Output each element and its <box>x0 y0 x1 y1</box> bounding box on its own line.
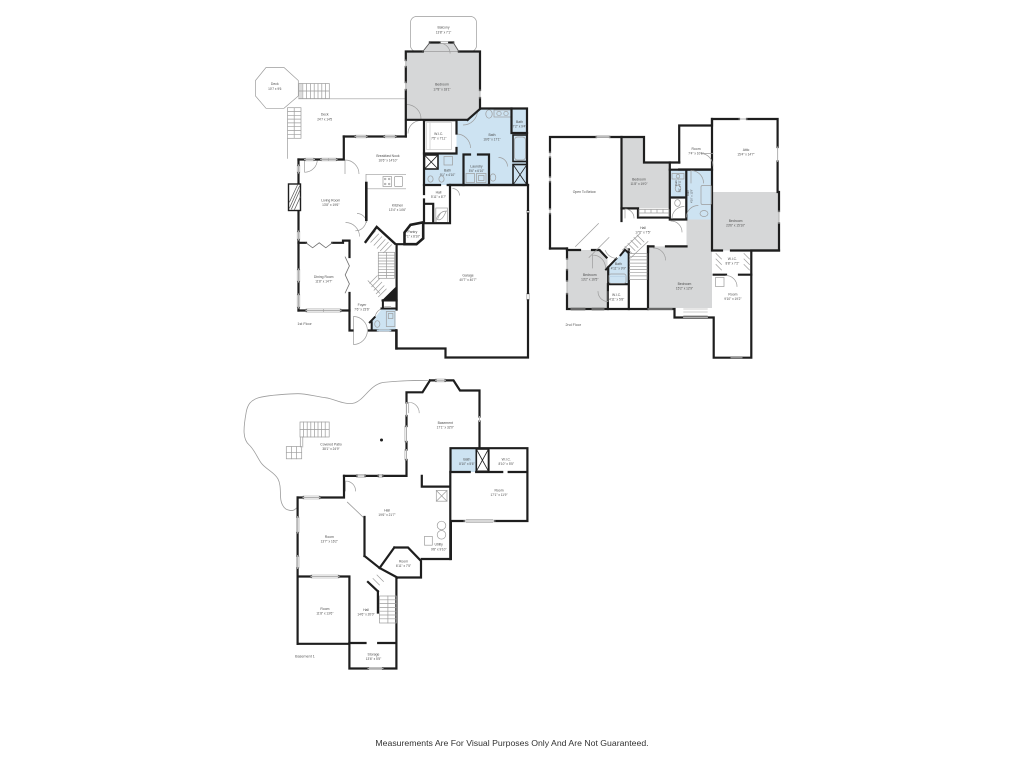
svg-text:Hall: Hall <box>436 190 442 194</box>
svg-text:Room: Room <box>691 147 700 151</box>
svg-text:Hall: Hall <box>384 509 390 513</box>
svg-text:23'6" x 15'10": 23'6" x 15'10" <box>726 224 745 228</box>
svg-text:9'8" x 9'10": 9'8" x 9'10" <box>431 547 446 551</box>
svg-text:W.I.C.: W.I.C. <box>612 293 621 297</box>
svg-text:Bath: Bath <box>516 120 523 124</box>
svg-text:Living Room: Living Room <box>321 198 340 202</box>
svg-text:11'8" x 14'7": 11'8" x 14'7" <box>315 279 332 283</box>
svg-text:8'10" x 5'5": 8'10" x 5'5" <box>499 462 514 466</box>
svg-text:13'8" x 7'1": 13'8" x 7'1" <box>436 30 451 34</box>
svg-text:10'7 x 9'6: 10'7 x 9'6 <box>268 87 282 91</box>
svg-text:Bedroom: Bedroom <box>583 273 597 277</box>
svg-text:7'6" x 23'6": 7'6" x 23'6" <box>354 308 369 312</box>
svg-text:14'6" x 20'0": 14'6" x 20'0" <box>357 612 374 616</box>
svg-text:W.I.C.: W.I.C. <box>502 458 511 462</box>
svg-text:16'6" x 14'10": 16'6" x 14'10" <box>379 158 398 162</box>
svg-text:24'7 x 14'5: 24'7 x 14'5 <box>317 117 332 121</box>
svg-text:1st Floor: 1st Floor <box>297 322 312 326</box>
svg-text:Balcony: Balcony <box>437 26 449 30</box>
svg-text:Garage: Garage <box>462 273 473 277</box>
svg-text:13'8" x 19'6": 13'8" x 19'6" <box>322 203 339 207</box>
svg-text:7'4" x 10'1": 7'4" x 10'1" <box>688 152 703 156</box>
svg-text:17'0" x 7'5": 17'0" x 7'5" <box>635 231 650 235</box>
svg-text:Attic: Attic <box>743 148 750 152</box>
svg-text:Dining Room: Dining Room <box>314 275 334 279</box>
svg-text:13'2" x 16'5": 13'2" x 16'5" <box>581 278 598 282</box>
svg-text:2nd Floor: 2nd Floor <box>566 323 582 327</box>
svg-text:5'11" x 8'7": 5'11" x 8'7" <box>431 195 446 199</box>
svg-text:15'2" x 12'9": 15'2" x 12'9" <box>676 287 693 291</box>
svg-text:Laundry: Laundry <box>470 164 483 168</box>
svg-text:5'6" x 6'10": 5'6" x 6'10" <box>469 169 484 173</box>
svg-text:6'11" x 7'5": 6'11" x 7'5" <box>396 564 411 568</box>
svg-text:40'7" x 40'7": 40'7" x 40'7" <box>459 278 476 282</box>
svg-text:7'2" x 9'4": 7'2" x 9'4" <box>513 124 527 128</box>
svg-text:Bath: Bath <box>686 190 690 196</box>
svg-text:Bath: Bath <box>489 133 496 137</box>
svg-text:9'10" x 19'2": 9'10" x 19'2" <box>724 297 741 301</box>
svg-text:Deck: Deck <box>271 82 279 86</box>
svg-text:Utility: Utility <box>435 543 444 547</box>
svg-text:Storage: Storage <box>368 653 380 657</box>
svg-text:Bath: Bath <box>615 262 622 266</box>
svg-text:Pantry: Pantry <box>407 230 417 234</box>
svg-text:Foyer: Foyer <box>358 303 368 307</box>
svg-text:17'1" x 11'9": 17'1" x 11'9" <box>491 493 508 497</box>
svg-text:8'8" x 7'2": 8'8" x 7'2" <box>726 262 740 266</box>
svg-text:5'6" x 9'11": 5'6" x 9'11" <box>678 180 682 193</box>
svg-text:Breakfast Nook: Breakfast Nook <box>376 154 399 158</box>
svg-text:7'5" x 7'11": 7'5" x 7'11" <box>431 137 446 141</box>
svg-text:Kitchen: Kitchen <box>392 204 403 208</box>
svg-text:Bath: Bath <box>674 180 678 186</box>
svg-text:Room: Room <box>325 535 334 539</box>
svg-text:13'4" x 14'6": 13'4" x 14'6" <box>389 208 406 212</box>
svg-text:16'6" x 17'1": 16'6" x 17'1" <box>483 137 500 141</box>
svg-text:Covered Patio: Covered Patio <box>320 442 342 446</box>
svg-text:7'1" x 8'10": 7'1" x 8'10" <box>405 235 420 239</box>
svg-text:17'1" x 32'0": 17'1" x 32'0" <box>437 425 454 429</box>
svg-text:Deck: Deck <box>321 113 329 117</box>
svg-text:Bath: Bath <box>444 168 451 172</box>
svg-text:W.I.C.: W.I.C. <box>434 132 443 136</box>
svg-text:11'8" x 19'0": 11'8" x 19'0" <box>631 182 648 186</box>
svg-text:Hall: Hall <box>363 608 369 612</box>
svg-text:13'7" x 16'2": 13'7" x 16'2" <box>321 540 338 544</box>
svg-text:Room: Room <box>728 292 737 296</box>
svg-text:38'1" x 24'9": 38'1" x 24'9" <box>322 447 339 451</box>
svg-text:19'6" x 21'7": 19'6" x 21'7" <box>378 513 395 517</box>
svg-text:Room: Room <box>320 607 329 611</box>
svg-text:13'6" x 5'5": 13'6" x 5'5" <box>366 657 381 661</box>
svg-text:Room: Room <box>494 489 503 493</box>
svg-text:4'11" x 9'9": 4'11" x 9'9" <box>611 267 626 271</box>
svg-text:11'8" x 13'6": 11'8" x 13'6" <box>316 612 333 616</box>
svg-text:Measurements Are For Visual Pu: Measurements Are For Visual Purposes Onl… <box>375 738 648 748</box>
svg-text:17'8" x 18'1": 17'8" x 18'1" <box>433 87 450 91</box>
svg-text:Basement 1: Basement 1 <box>295 654 315 658</box>
svg-text:Basement: Basement <box>438 421 453 425</box>
svg-text:Hall: Hall <box>640 226 646 230</box>
svg-text:W.I.C.: W.I.C. <box>728 257 737 261</box>
svg-text:Bedroom: Bedroom <box>729 219 743 223</box>
svg-text:4'10" x 11'9": 4'10" x 11'9" <box>690 189 694 203</box>
svg-text:Room: Room <box>399 559 408 563</box>
svg-text:Open To Below: Open To Below <box>573 190 596 194</box>
svg-text:9'1" x 4'10": 9'1" x 4'10" <box>440 173 455 177</box>
svg-text:8'10" x 5'6": 8'10" x 5'6" <box>459 462 474 466</box>
svg-text:Bath: Bath <box>463 458 470 462</box>
svg-text:Bedroom: Bedroom <box>632 178 646 182</box>
svg-text:15'4" x 14'7": 15'4" x 14'7" <box>737 153 754 157</box>
svg-text:Bedroom: Bedroom <box>435 83 449 87</box>
svg-text:Bedroom: Bedroom <box>678 282 692 286</box>
svg-text:4'11" x 5'8": 4'11" x 5'8" <box>609 298 624 302</box>
